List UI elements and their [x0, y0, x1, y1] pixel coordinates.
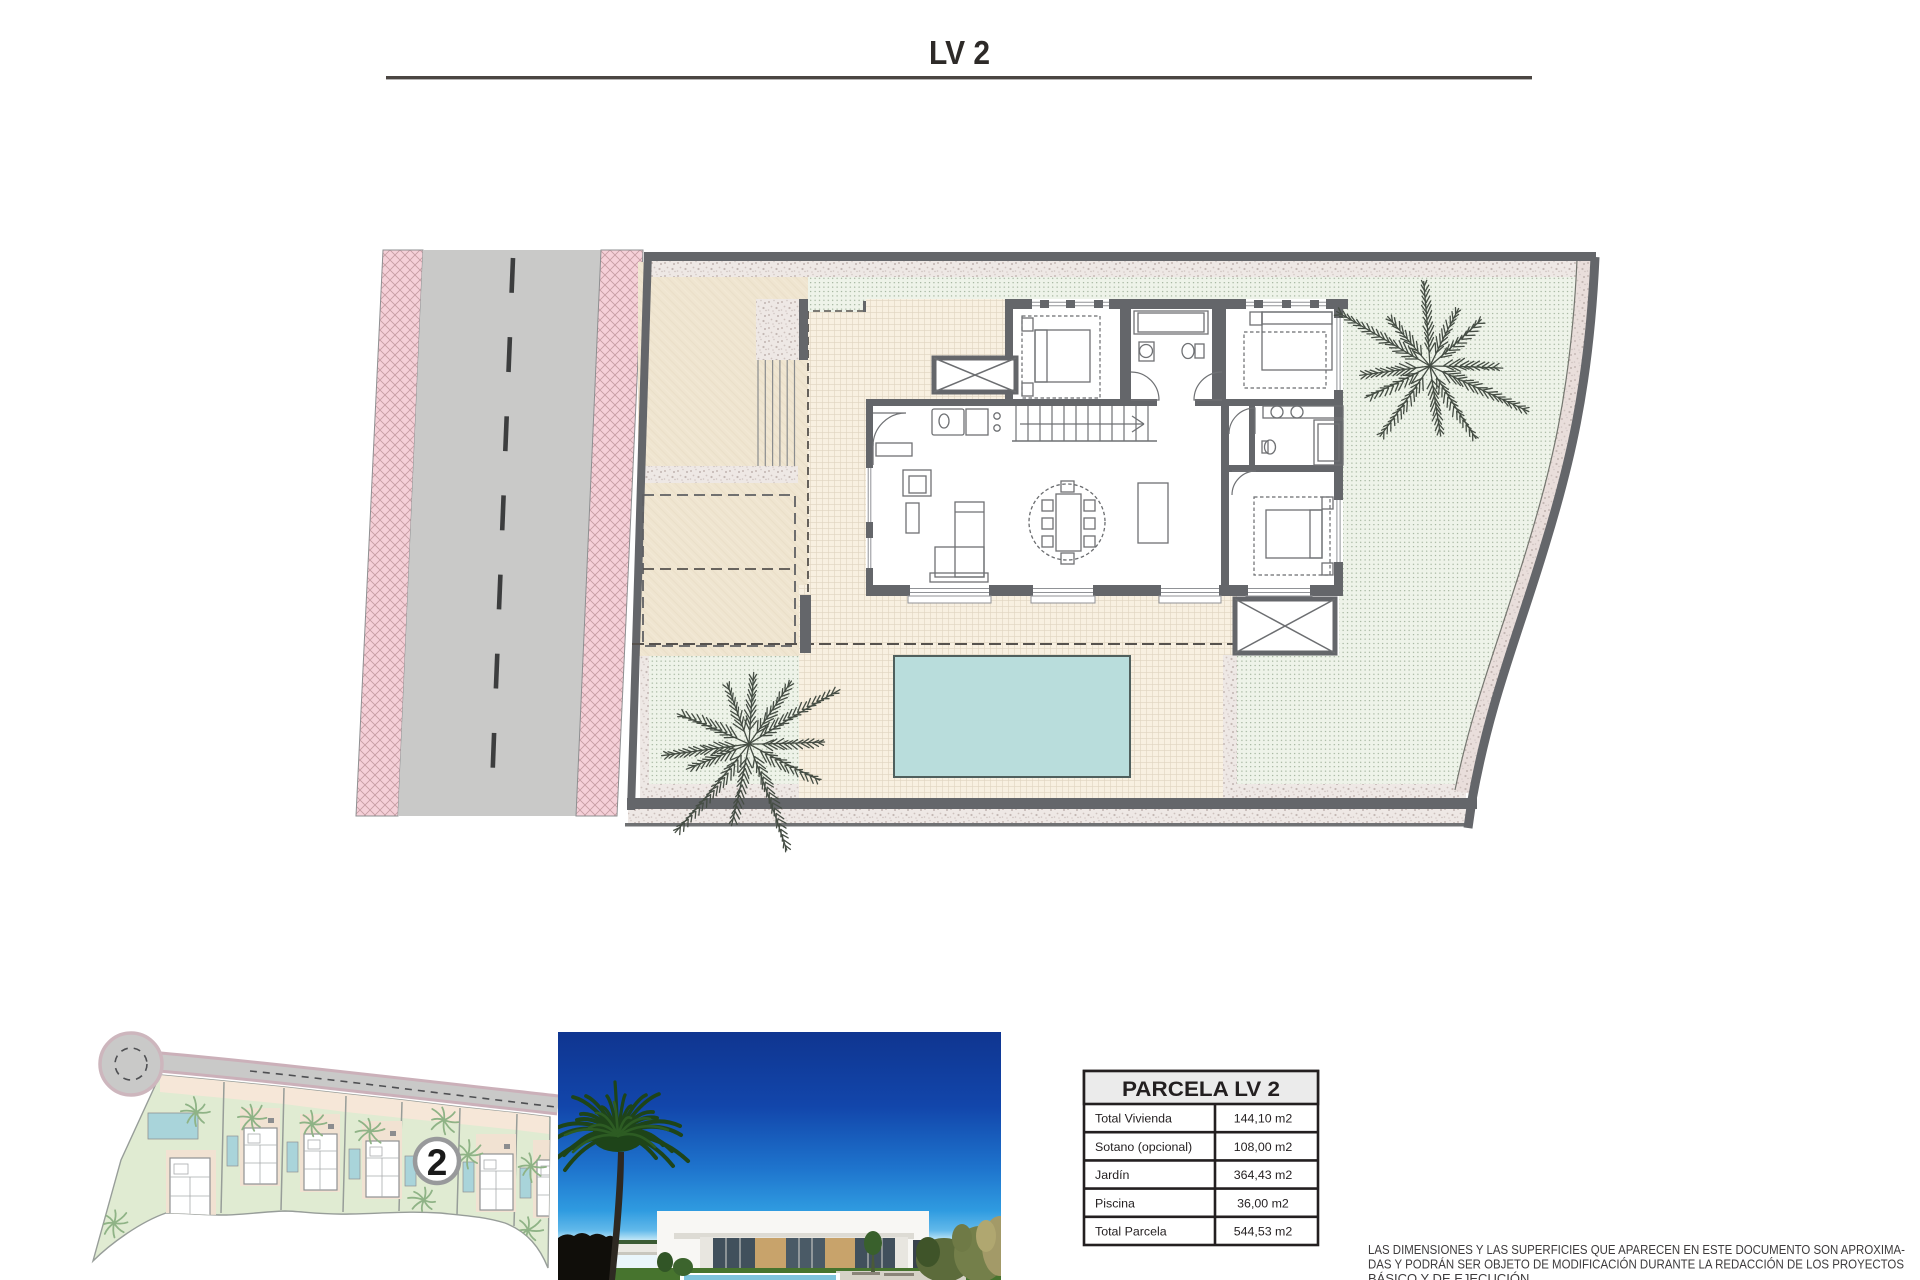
svg-text:544,53 m2: 544,53 m2: [1234, 1225, 1293, 1239]
svg-text:LAS DIMENSIONES Y LAS SUPERFIC: LAS DIMENSIONES Y LAS SUPERFICIES QUE AP…: [1368, 1242, 1905, 1257]
svg-text:36,00 m2: 36,00 m2: [1237, 1196, 1289, 1210]
svg-text:DAS Y PODRÁN SER OBJETO DE MOD: DAS Y PODRÁN SER OBJETO DE MODIFICACIÓN …: [1368, 1257, 1904, 1272]
svg-text:364,43 m2: 364,43 m2: [1234, 1168, 1293, 1182]
svg-text:Total Parcela: Total Parcela: [1095, 1225, 1167, 1239]
svg-text:Piscina: Piscina: [1095, 1196, 1135, 1210]
svg-text:144,10 m2: 144,10 m2: [1234, 1112, 1293, 1126]
svg-text:Sotano (opcional): Sotano (opcional): [1095, 1140, 1192, 1154]
svg-text:108,00 m2: 108,00 m2: [1234, 1140, 1293, 1154]
svg-text:BÁSICO Y DE EJECUCIÓN.: BÁSICO Y DE EJECUCIÓN.: [1368, 1271, 1533, 1280]
svg-text:Total Vivienda: Total Vivienda: [1095, 1112, 1172, 1126]
svg-text:PARCELA LV 2: PARCELA LV 2: [1122, 1078, 1280, 1101]
svg-text:Jardín: Jardín: [1095, 1168, 1130, 1182]
svg-text:LV 2: LV 2: [929, 34, 990, 71]
svg-text:2: 2: [427, 1142, 448, 1183]
